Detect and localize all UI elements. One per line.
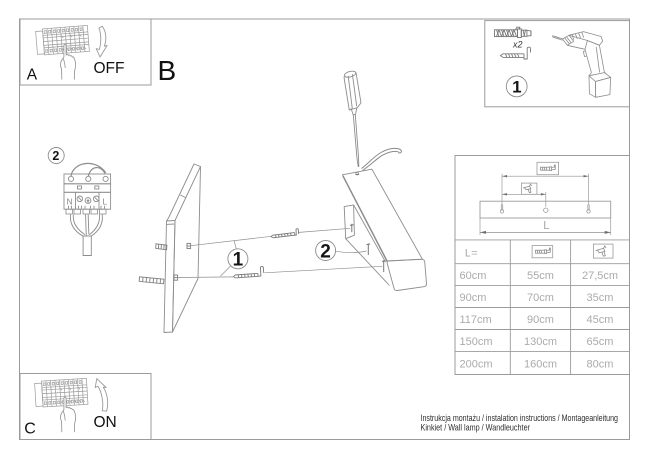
svg-text:90cm: 90cm [527,314,554,326]
svg-text:200cm: 200cm [460,359,493,371]
svg-text:160cm: 160cm [524,359,557,371]
svg-text:27,5cm: 27,5cm [582,270,618,282]
svg-text:117cm: 117cm [460,314,492,326]
svg-text:1: 1 [512,78,521,97]
svg-text:L: L [103,197,108,207]
svg-text:N: N [67,197,73,207]
svg-text:L: L [543,219,550,233]
svg-text:45cm: 45cm [587,314,614,326]
svg-text:1: 1 [233,250,244,271]
svg-text:130cm: 130cm [524,336,557,348]
svg-text:70cm: 70cm [527,292,554,304]
svg-text:ON: ON [94,414,117,431]
svg-text:x2: x2 [512,40,523,50]
svg-text:55cm: 55cm [527,270,554,282]
svg-text:90cm: 90cm [460,292,487,304]
svg-text:A: A [27,66,38,83]
svg-text:L=: L= [465,249,478,261]
svg-text:60cm: 60cm [460,270,487,282]
svg-text:C: C [24,420,36,437]
svg-text:80cm: 80cm [587,359,614,371]
svg-text:2: 2 [52,149,59,163]
svg-text:35cm: 35cm [587,292,614,304]
svg-text:OFF: OFF [94,60,125,77]
svg-text:65cm: 65cm [587,336,614,348]
svg-text:150cm: 150cm [460,336,493,348]
svg-text:B: B [158,55,177,86]
svg-text:2: 2 [320,242,331,263]
svg-text:Kinkiet / Wall lamp / Wandleuc: Kinkiet / Wall lamp / Wandleuchter [421,422,531,433]
